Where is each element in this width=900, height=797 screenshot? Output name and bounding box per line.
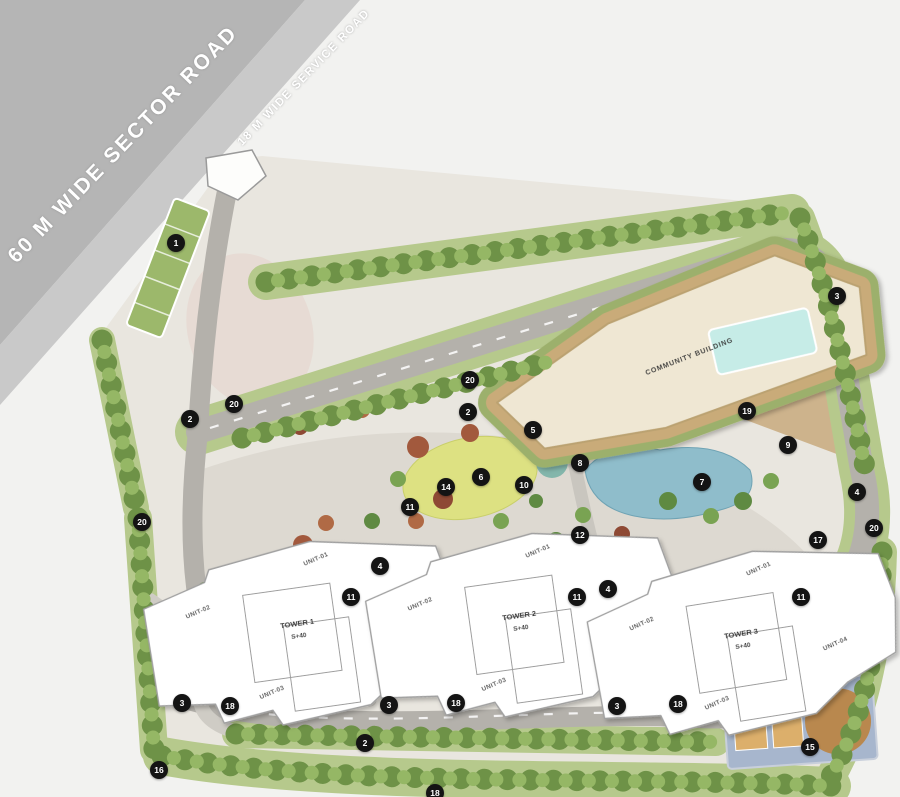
site-plan-canvas: COMMUNITY BUILDING <box>0 0 900 797</box>
